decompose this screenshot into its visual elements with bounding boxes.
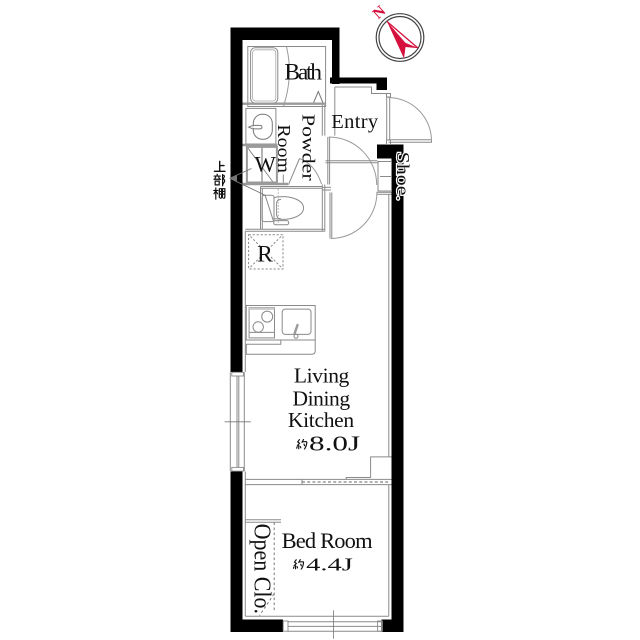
svg-text:Open Clo.: Open Clo. <box>249 524 275 614</box>
svg-text:Kitchen: Kitchen <box>288 408 355 432</box>
svg-text:Dining: Dining <box>292 386 350 410</box>
svg-text:Powder: Powder <box>298 114 318 181</box>
svg-text:R: R <box>257 241 273 267</box>
svg-text:Shoe.: Shoe. <box>393 152 413 201</box>
svg-text:4.4J: 4.4J <box>306 556 353 575</box>
svg-text:Room: Room <box>274 124 294 173</box>
svg-text:Bed Room: Bed Room <box>282 528 373 553</box>
svg-text:W: W <box>255 151 277 176</box>
svg-text:Entry: Entry <box>331 111 379 133</box>
svg-text:Bath: Bath <box>284 60 322 86</box>
svg-text:Living: Living <box>294 364 350 388</box>
svg-text:8.0J: 8.0J <box>309 431 360 455</box>
